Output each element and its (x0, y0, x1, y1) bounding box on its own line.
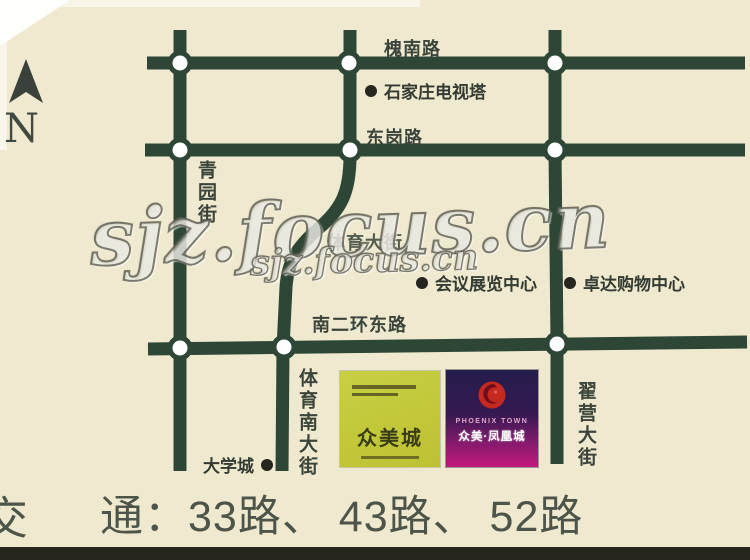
zhongmei-logo: 众美城 (340, 371, 440, 467)
phoenix-logo: PHOENIX TOWN 众美·凤凰城 (446, 370, 538, 467)
map-canvas: N 槐南路 东岗路 南二环东路 青园街 体育大街 体育南大街 翟营大街 石家庄电… (0, 0, 750, 560)
poi-tv-tower: 石家庄电视塔 (365, 78, 486, 103)
road-zhaiying (555, 30, 557, 464)
road-label-qingyuan: 青园街 (192, 160, 219, 226)
location-dot-icon (261, 459, 273, 471)
intersection-icon (547, 334, 567, 354)
location-dot-icon (365, 85, 377, 97)
location-dot-icon (564, 277, 576, 289)
intersection-icon (170, 338, 190, 358)
footer-bus-text-clipped: 交 (0, 482, 28, 547)
phoenix-emblem-icon (476, 379, 508, 411)
zhongmei-fineprint (361, 456, 419, 459)
intersection-icon (170, 140, 190, 160)
road-label-huainan: 槐南路 (384, 35, 441, 61)
intersection-icon (274, 337, 294, 357)
poi-exhibition-center: 会议展览中心 (416, 270, 537, 295)
road-label-nanerhuan: 南二环东路 (312, 311, 407, 337)
intersection-icon (339, 53, 359, 73)
north-label: N (4, 109, 50, 149)
poi-label: 会议展览中心 (435, 270, 537, 295)
poi-label: 卓达购物中心 (583, 270, 685, 295)
zhongmei-fineprint (352, 393, 398, 396)
poi-university-town: 大学城 (203, 452, 273, 477)
zhongmei-logo-name: 众美城 (340, 422, 440, 451)
intersection-icon (340, 140, 360, 160)
phoenix-logo-cn: 众美·凤凰城 (458, 428, 525, 444)
intersection-icon (545, 140, 565, 160)
phoenix-logo-en: PHOENIX TOWN (456, 418, 529, 425)
poi-label: 大学城 (203, 452, 254, 477)
poi-zhuoda-mall: 卓达购物中心 (564, 270, 685, 295)
poi-label: 石家庄电视塔 (384, 78, 486, 103)
road-label-tiyu: 体育大街 (327, 229, 403, 255)
footer-bus-routes: 通：33路、 43路、 52路 (100, 482, 583, 544)
road-nanerhuan (148, 342, 747, 349)
photo-edge-bottom (0, 547, 750, 560)
intersection-icon (170, 53, 190, 73)
road-label-donggang: 东岗路 (366, 124, 423, 150)
intersection-icon (545, 53, 565, 73)
north-arrow-icon (6, 56, 50, 106)
road-label-tiyu-south: 体育南大街 (293, 368, 320, 478)
road-label-zhaiying: 翟营大街 (572, 381, 599, 469)
compass: N (6, 56, 50, 149)
zhongmei-fineprint (352, 385, 416, 389)
location-dot-icon (416, 277, 428, 289)
